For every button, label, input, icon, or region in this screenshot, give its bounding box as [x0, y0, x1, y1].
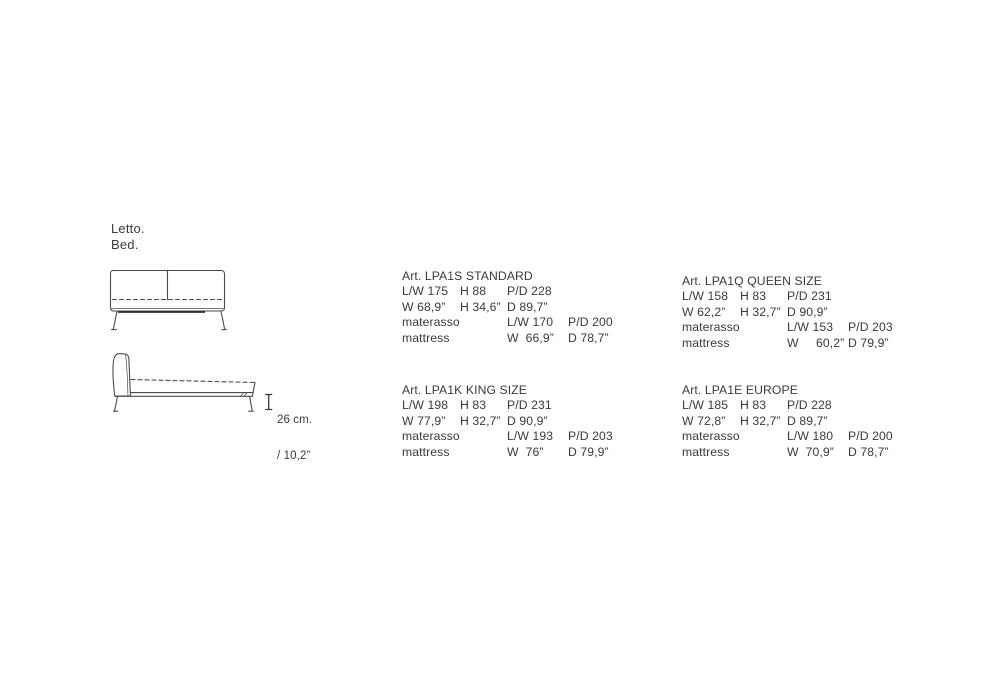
- bed-side-right-edge: [253, 383, 255, 393]
- mattress-lw-cm: L/W 153: [787, 320, 848, 335]
- mattress-w-in: W 70,9”: [787, 445, 848, 460]
- mattress-dimensions-cm: materasso L/W 170 P/D 200: [402, 315, 662, 330]
- page-title-english: Bed.: [111, 237, 145, 253]
- bed-side-platform: [115, 393, 253, 397]
- mattress-label-italian: materasso: [682, 320, 787, 335]
- frame-pd-cm: P/D 228: [507, 284, 552, 299]
- frame-h-in: H 32,7”: [740, 305, 787, 320]
- frame-pd-cm: P/D 231: [787, 289, 832, 304]
- frame-lw-cm: L/W 198: [402, 398, 460, 413]
- mattress-dimensions-in: mattress W 66,9” D 78,7”: [402, 331, 662, 346]
- frame-pd-cm: P/D 228: [787, 398, 832, 413]
- mattress-pd-cm: P/D 203: [568, 429, 613, 444]
- catalog-spec-page: Letto. Bed. 26 cm. / 10,2” Art. LPA1S ST…: [0, 0, 1000, 700]
- page-title: Letto. Bed.: [111, 221, 145, 253]
- spec-block-europe: Art. LPA1E EUROPE L/W 185 H 83 P/D 228 W…: [682, 383, 942, 460]
- bed-front-view-drawing: [104, 264, 234, 334]
- mattress-label-english: mattress: [402, 331, 507, 346]
- mattress-lw-cm: L/W 180: [787, 429, 848, 444]
- frame-d-in: D 89,7”: [787, 414, 828, 429]
- page-title-italian: Letto.: [111, 221, 145, 237]
- frame-h-cm: H 83: [740, 398, 787, 413]
- article-code: Art. LPA1E EUROPE: [682, 383, 942, 398]
- bed-side-mattress-dashed-line: [131, 380, 255, 383]
- mattress-dimensions-in: mattress W 60,2” D 79,9”: [682, 336, 942, 351]
- spec-block-standard: Art. LPA1S STANDARD L/W 175 H 88 P/D 228…: [402, 269, 662, 346]
- frame-dimensions-cm: L/W 198 H 83 P/D 231: [402, 398, 662, 413]
- frame-pd-cm: P/D 231: [507, 398, 552, 413]
- mattress-w-in: W 60,2”: [787, 336, 848, 351]
- mattress-pd-cm: P/D 200: [848, 429, 893, 444]
- frame-lw-cm: L/W 175: [402, 284, 460, 299]
- article-code: Art. LPA1S STANDARD: [402, 269, 662, 284]
- height-dimension-metric: 26 cm.: [277, 414, 312, 426]
- frame-d-in: D 90,9”: [787, 305, 828, 320]
- spec-block-queen-size: Art. LPA1Q QUEEN SIZE L/W 158 H 83 P/D 2…: [682, 274, 942, 351]
- frame-dimensions-cm: L/W 175 H 88 P/D 228: [402, 284, 662, 299]
- frame-dimensions-in: W 72,8” H 32,7” D 89,7”: [682, 414, 942, 429]
- mattress-label-english: mattress: [402, 445, 507, 460]
- bed-side-left-leg: [113, 396, 117, 411]
- frame-lw-cm: L/W 185: [682, 398, 740, 413]
- mattress-d-in: D 79,9”: [848, 336, 889, 351]
- frame-h-in: H 32,7”: [740, 414, 787, 429]
- mattress-label-italian: materasso: [402, 429, 507, 444]
- mattress-label-english: mattress: [682, 336, 787, 351]
- bed-side-right-leg: [249, 396, 254, 411]
- mattress-d-in: D 78,7”: [568, 331, 609, 346]
- frame-dimensions-in: W 77,9” H 32,7” D 90,9”: [402, 414, 662, 429]
- frame-h-cm: H 88: [460, 284, 507, 299]
- mattress-pd-cm: P/D 203: [848, 320, 893, 335]
- bed-side-view-drawing: [104, 346, 276, 418]
- frame-w-in: W 77,9”: [402, 414, 460, 429]
- frame-w-in: W 68,9”: [402, 300, 460, 315]
- mattress-d-in: D 78,7”: [848, 445, 889, 460]
- bed-front-right-leg: [221, 312, 226, 330]
- mattress-w-in: W 66,9”: [507, 331, 568, 346]
- frame-w-in: W 62,2”: [682, 305, 740, 320]
- frame-lw-cm: L/W 158: [682, 289, 740, 304]
- frame-w-in: W 72,8”: [682, 414, 740, 429]
- frame-d-in: D 89,7”: [507, 300, 548, 315]
- mattress-label-italian: materasso: [402, 315, 507, 330]
- mattress-lw-cm: L/W 193: [507, 429, 568, 444]
- frame-d-in: D 90,9”: [507, 414, 548, 429]
- frame-h-in: H 34,6”: [460, 300, 507, 315]
- frame-dimensions-in: W 68,9” H 34,6” D 89,7”: [402, 300, 662, 315]
- height-dimension-marker: [265, 395, 272, 410]
- mattress-dimensions-in: mattress W 70,9” D 78,7”: [682, 445, 942, 460]
- frame-dimensions-cm: L/W 158 H 83 P/D 231: [682, 289, 942, 304]
- frame-h-cm: H 83: [460, 398, 507, 413]
- frame-dimensions-cm: L/W 185 H 83 P/D 228: [682, 398, 942, 413]
- mattress-pd-cm: P/D 200: [568, 315, 613, 330]
- mattress-d-in: D 79,9”: [568, 445, 609, 460]
- height-dimension-imperial: / 10,2”: [277, 450, 312, 462]
- mattress-lw-cm: L/W 170: [507, 315, 568, 330]
- frame-h-cm: H 83: [740, 289, 787, 304]
- frame-h-in: H 32,7”: [460, 414, 507, 429]
- mattress-label-english: mattress: [682, 445, 787, 460]
- mattress-dimensions-cm: materasso L/W 153 P/D 203: [682, 320, 942, 335]
- bed-front-left-leg: [112, 312, 117, 330]
- mattress-dimensions-cm: materasso L/W 193 P/D 203: [402, 429, 662, 444]
- article-code: Art. LPA1K KING SIZE: [402, 383, 662, 398]
- mattress-dimensions-cm: materasso L/W 180 P/D 200: [682, 429, 942, 444]
- frame-dimensions-in: W 62,2” H 32,7” D 90,9”: [682, 305, 942, 320]
- height-dimension-label: 26 cm. / 10,2”: [277, 390, 312, 486]
- mattress-dimensions-in: mattress W 76” D 79,9”: [402, 445, 662, 460]
- article-code: Art. LPA1Q QUEEN SIZE: [682, 274, 942, 289]
- mattress-label-italian: materasso: [682, 429, 787, 444]
- spec-block-king-size: Art. LPA1K KING SIZE L/W 198 H 83 P/D 23…: [402, 383, 662, 460]
- mattress-w-in: W 76”: [507, 445, 568, 460]
